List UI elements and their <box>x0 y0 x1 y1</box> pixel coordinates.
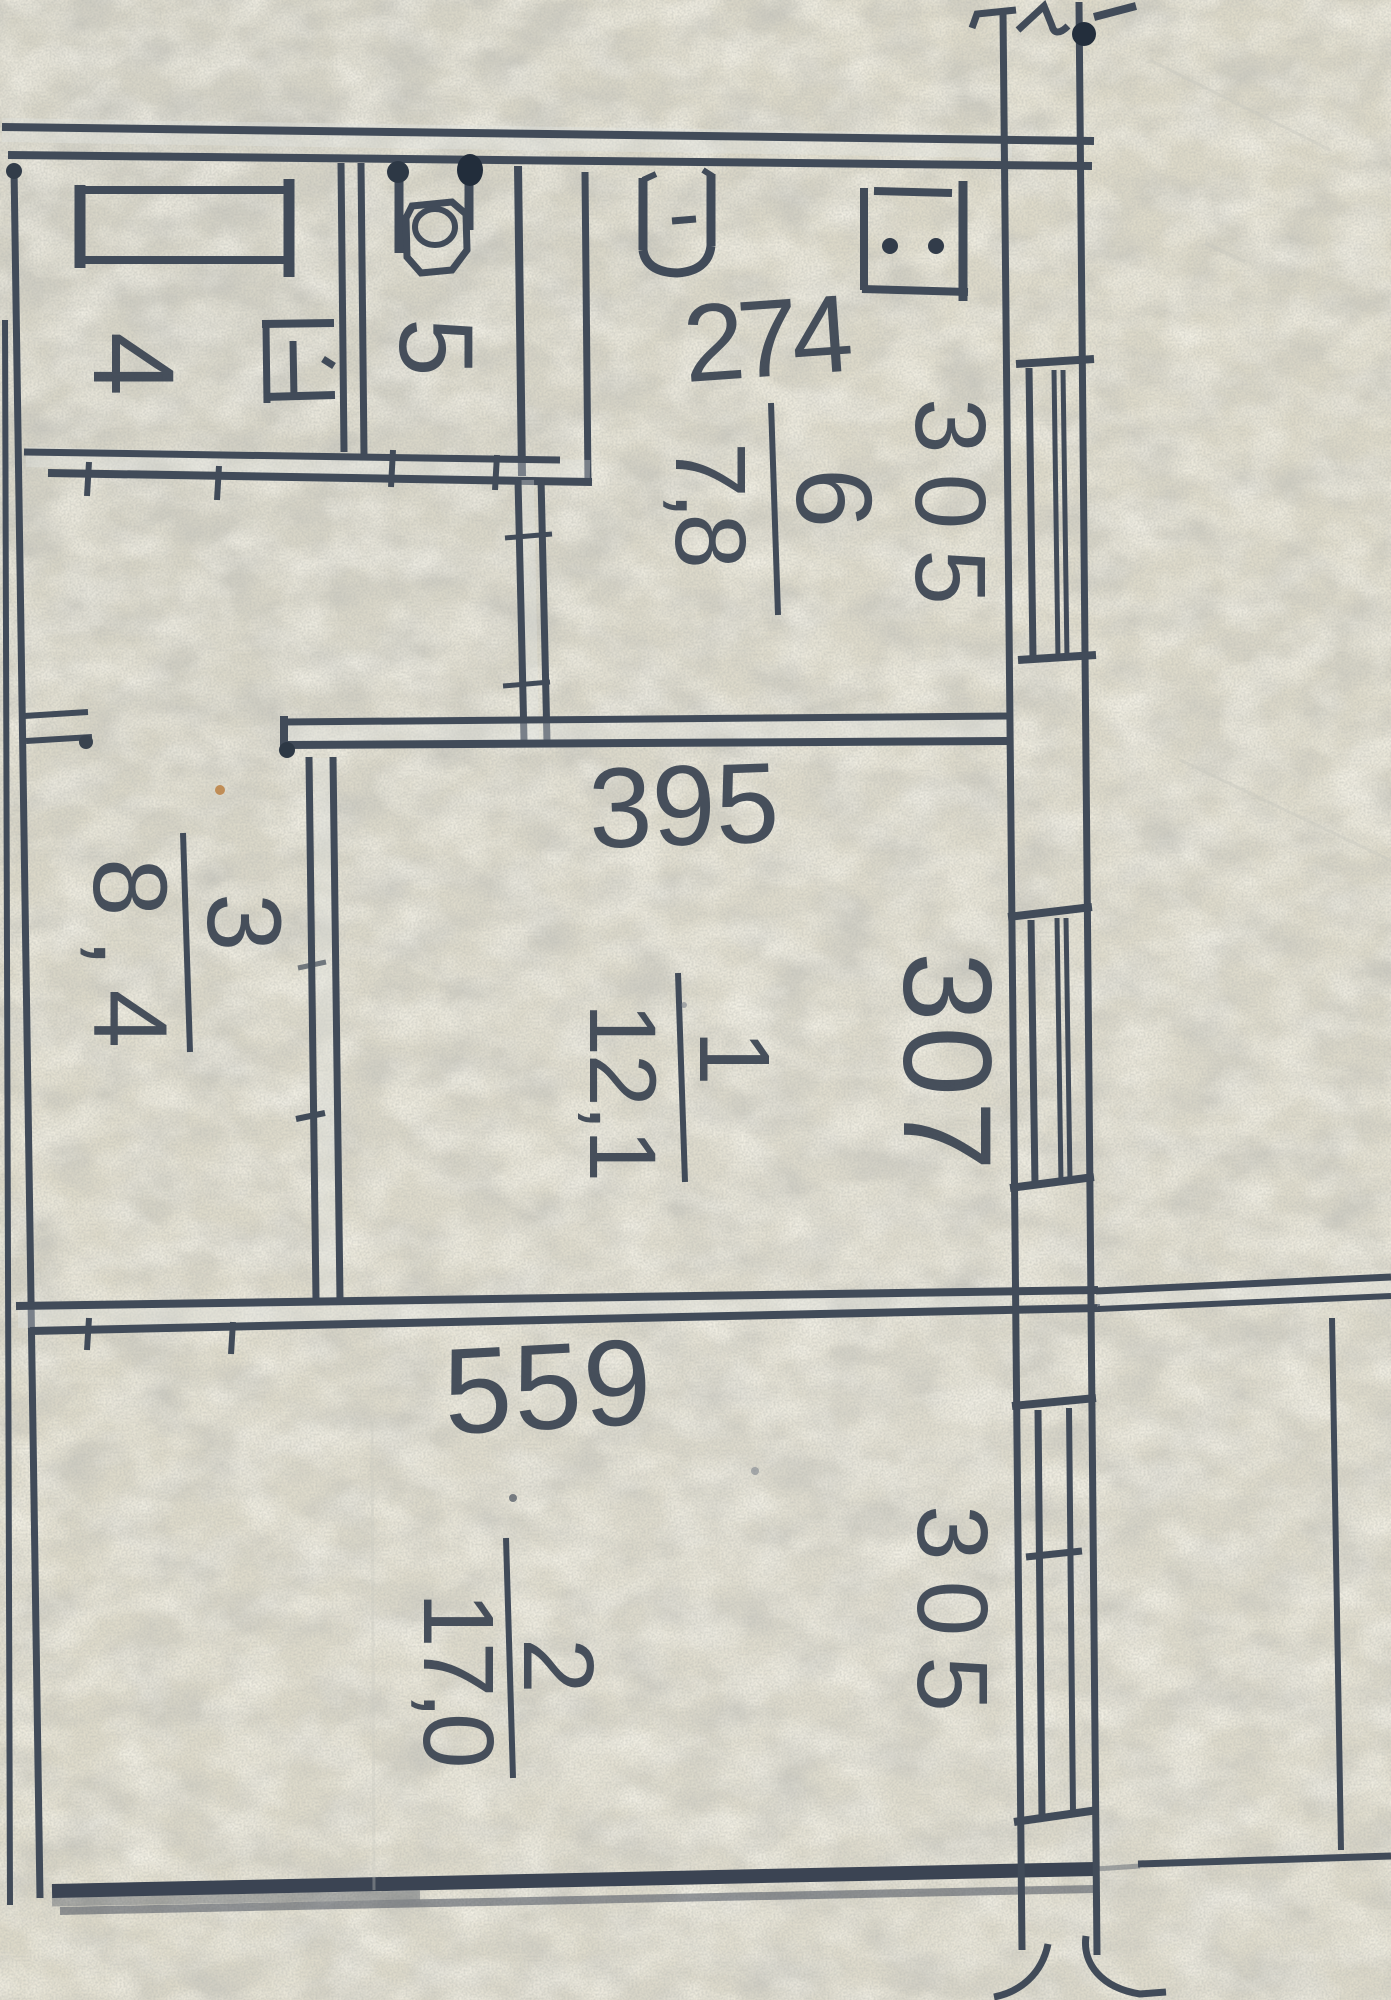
svg-text:5: 5 <box>377 318 494 376</box>
svg-text:7,8: 7,8 <box>654 442 766 565</box>
svg-text:395: 395 <box>586 739 781 873</box>
svg-text:559: 559 <box>440 1313 656 1460</box>
svg-text:6: 6 <box>774 468 895 528</box>
svg-text:2: 2 <box>502 1638 614 1694</box>
svg-text:3: 3 <box>185 893 302 951</box>
svg-text:8,4: 8,4 <box>71 858 188 1070</box>
svg-text:307: 307 <box>877 952 1016 1176</box>
svg-text:17,0: 17,0 <box>402 1592 514 1765</box>
svg-text:305: 305 <box>896 1505 1008 1732</box>
svg-text:274: 274 <box>679 272 854 406</box>
svg-text:4: 4 <box>69 332 197 396</box>
svg-text:305: 305 <box>894 398 1006 625</box>
svg-text:1: 1 <box>678 1030 790 1086</box>
svg-text:12,1: 12,1 <box>569 1003 675 1180</box>
